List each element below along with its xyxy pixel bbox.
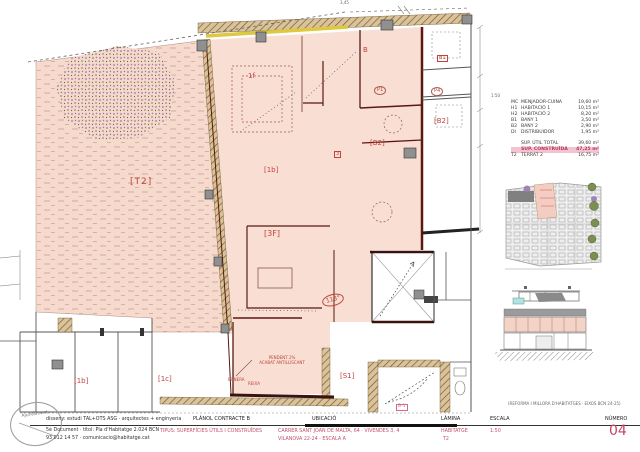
key-site-plan	[505, 183, 601, 269]
drain-annotation-right: REIXA	[248, 382, 260, 386]
planol-header: PLÀNOL CONTRACTE B	[193, 417, 250, 423]
neighbour-label-1c: [1c]	[158, 376, 172, 383]
room-name: DISTRIBUIDOR	[521, 130, 573, 136]
room-code: T2	[511, 153, 521, 159]
plan-drawing	[0, 0, 640, 452]
tag-3: 3	[334, 151, 341, 158]
room-label-terrace: [T2]	[130, 178, 152, 187]
ubicacio-header: UBICACIÓ	[312, 417, 336, 423]
legend-total-terrace: T2TERRAT 216,75 m²	[511, 153, 599, 159]
drain-annotation-left: BUNERA	[228, 378, 245, 382]
drawing-sheet: [T2] 1f B P1 [B2] 3 [1b] [3F] 113° PENDE…	[0, 0, 640, 452]
stair-tag: B-1	[396, 404, 408, 411]
reference-note: (REFORMA I MILLORA D'HABITATGES · EIXOS …	[508, 402, 621, 406]
purple-tree	[591, 196, 597, 202]
ubicacio-line2: VILANOVA 22-24 · ESCALA A	[278, 437, 346, 442]
neighbour-label-b2: [B2]	[434, 118, 449, 125]
planol-value: TIPUS: SUPERFÍCIES ÚTILS I CONSTRUÏDES	[160, 429, 262, 434]
room-label-b: B	[363, 47, 368, 54]
legend-row: DIDISTRIBUIDOR1,95 m²	[511, 130, 599, 136]
room-area-legend: MCMENJADOR-CUINA19,60 m² H1HABITACIÓ 110…	[511, 100, 599, 159]
section-drawing	[494, 286, 594, 361]
floor-plan	[0, 6, 483, 413]
document-title: 5è Document · títol: Pla d'Habitatge 2.0…	[46, 428, 159, 433]
purple-tree	[524, 186, 531, 193]
document-contact: 93 012 14 57 · comunicacio@habitatge.cat	[46, 436, 150, 441]
numero-header: NÚMERO	[605, 417, 627, 423]
room-area: 1,95 m²	[573, 130, 599, 136]
sheet-number: 04	[609, 424, 627, 439]
highlighted-unit	[534, 183, 557, 219]
studio-credit: disseny: estudi TAL+OTS ASG · arquitecte…	[46, 417, 181, 422]
escala-value: 1:50	[490, 429, 501, 434]
room-code: DI	[511, 130, 521, 136]
total-area: 16,75 m²	[573, 153, 599, 159]
lamina-header: LÀMINA	[441, 417, 460, 423]
lamina-line2: T2	[443, 437, 449, 442]
neighbour-label-b1: B1	[437, 55, 448, 62]
slope-annotation-2: ACABAT ANTILLISCANT	[252, 361, 312, 366]
room-label-1b: [1b]	[264, 167, 278, 174]
room-label-b2: [B2]	[370, 140, 385, 147]
escala-header: ESCALA	[490, 417, 510, 423]
ubicacio-line1: CARRER SANT JOAN DE MALTA, 64 · VIVENDES…	[278, 429, 399, 434]
titleblock-thick-bar	[305, 424, 457, 427]
legend-scale-note: 1:50	[491, 94, 500, 98]
neighbour-label-1b: [1b]	[74, 378, 88, 385]
lamina-line1: HABITATGE	[441, 429, 468, 434]
total-name: TERRAT 2	[521, 153, 573, 159]
room-label-1f: 1f	[248, 73, 255, 80]
room-label-3f: [3F]	[264, 230, 280, 238]
room-label-s1: [S1]	[340, 373, 354, 380]
top-dimension: 3,45	[340, 1, 349, 5]
